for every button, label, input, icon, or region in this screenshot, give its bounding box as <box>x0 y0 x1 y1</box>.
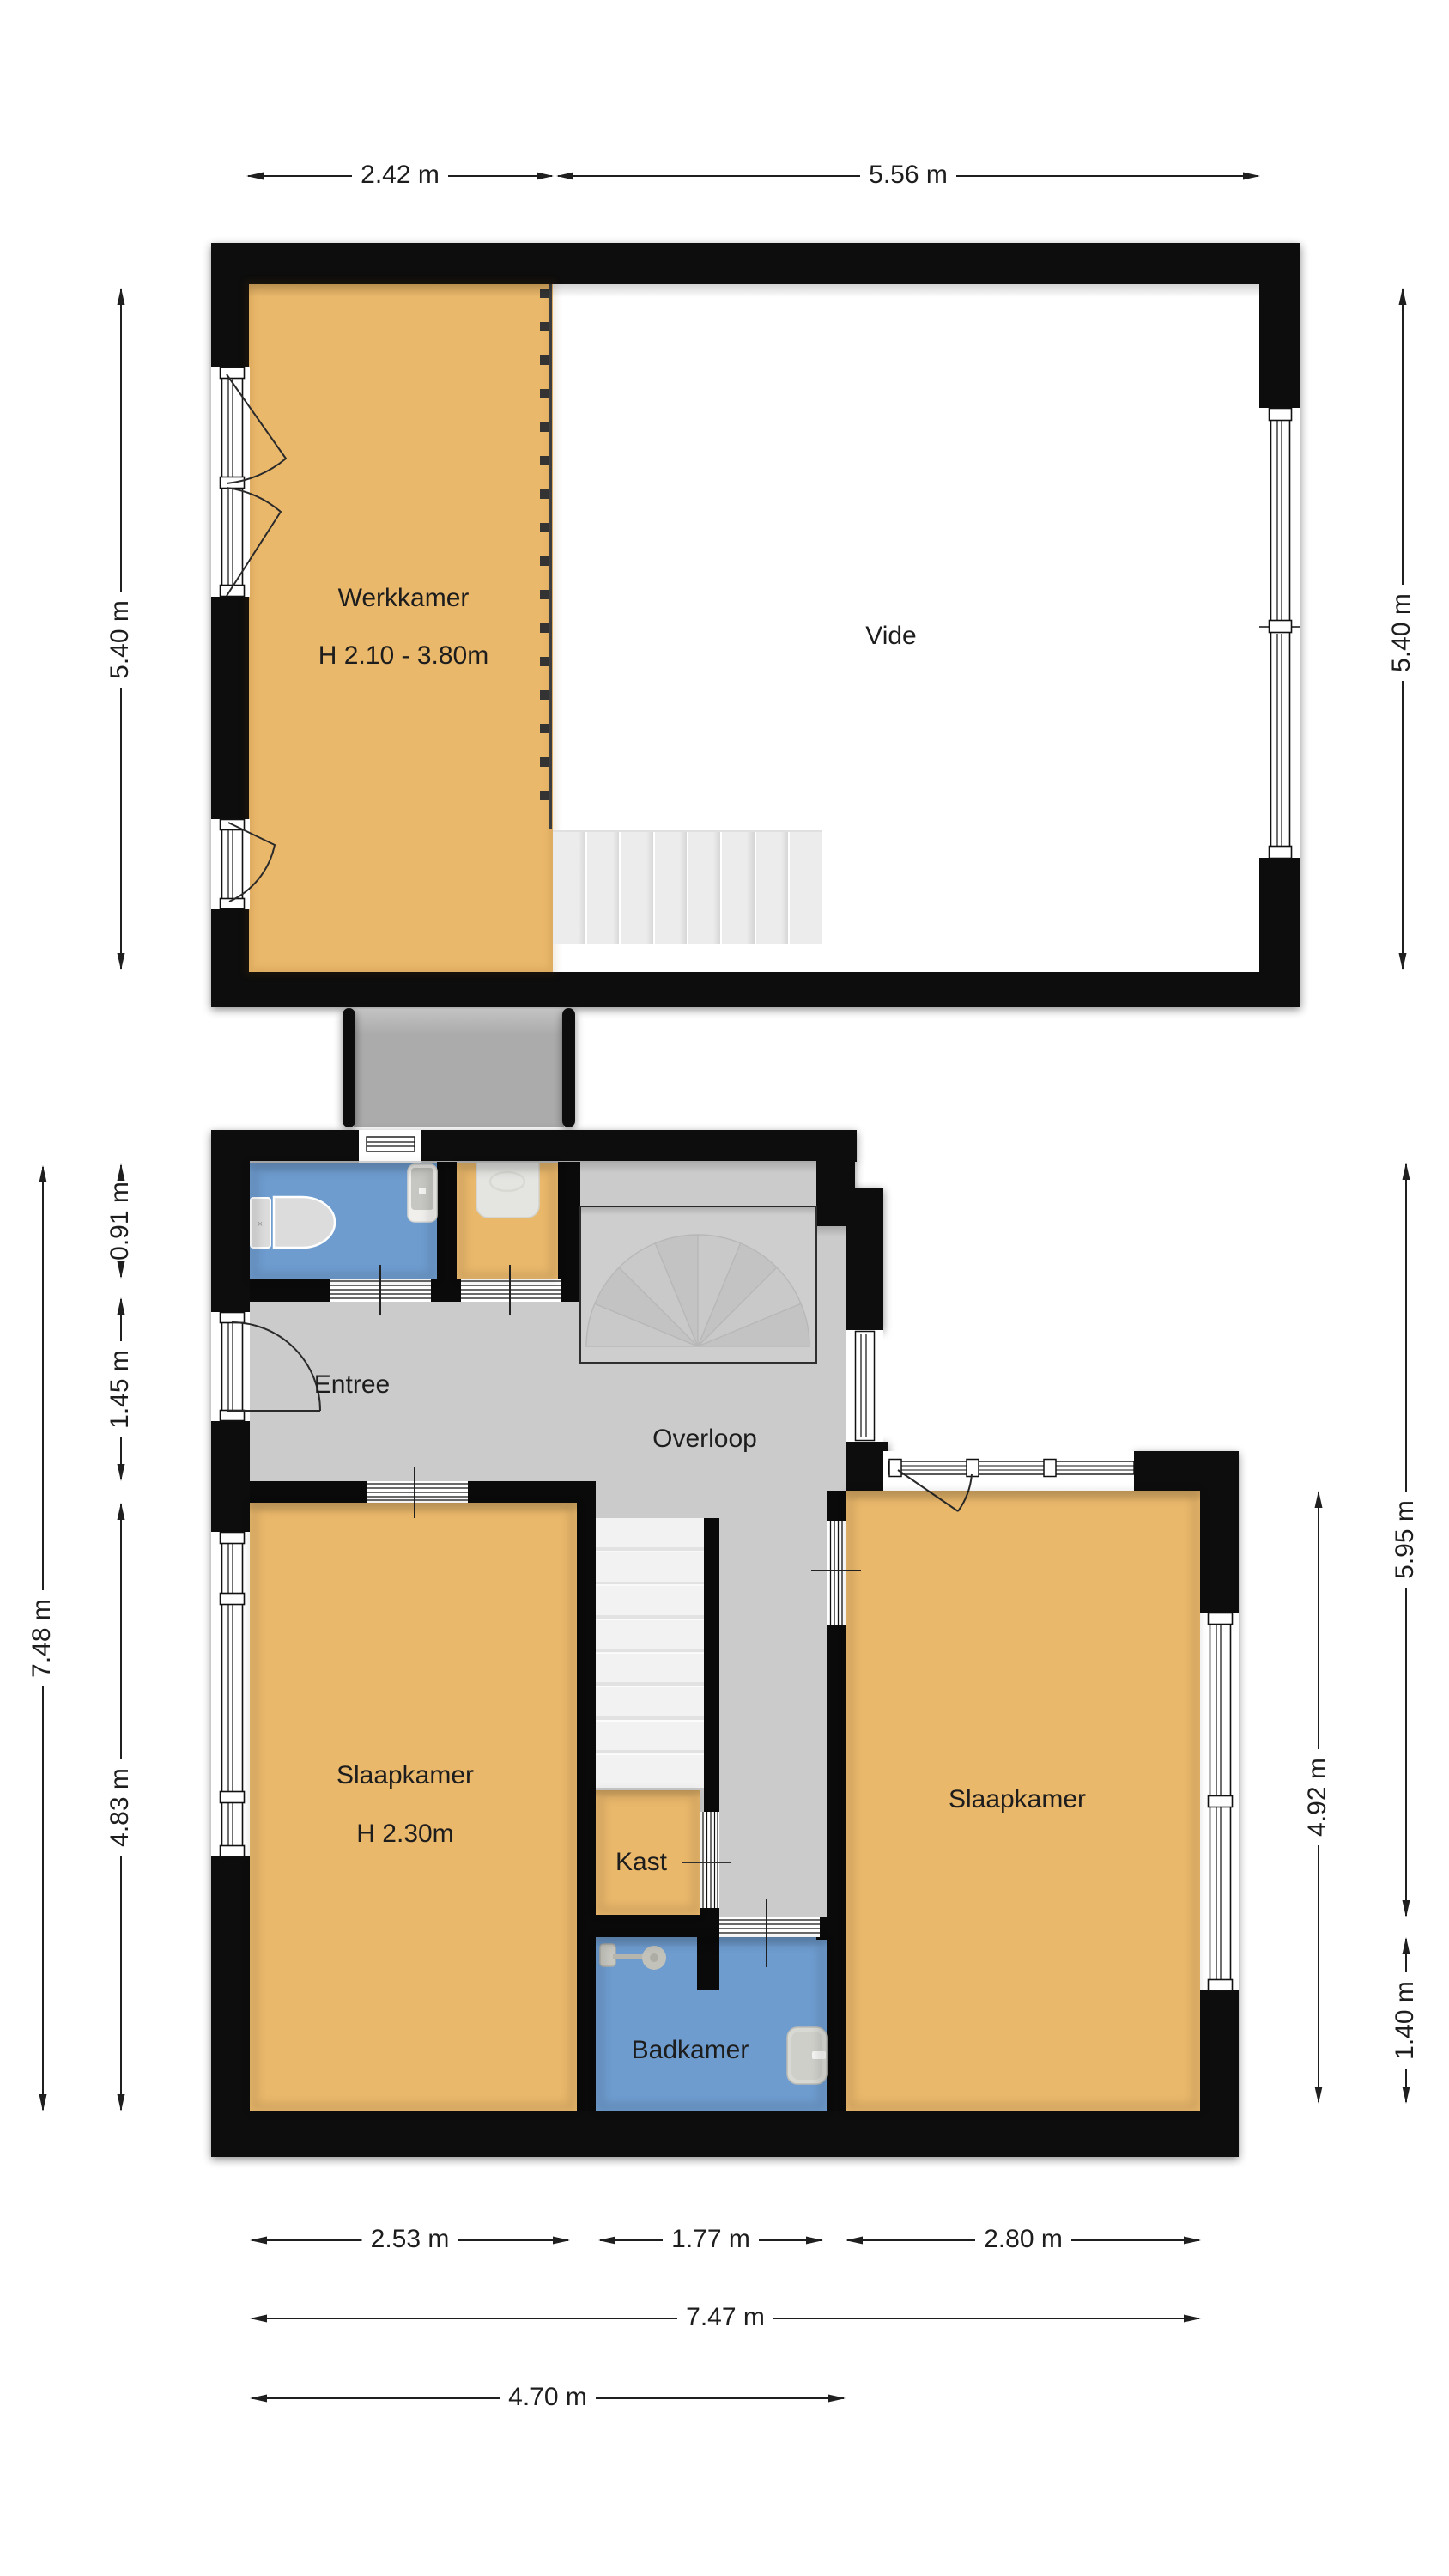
svg-text:4.70 m: 4.70 m <box>508 2383 587 2411</box>
svg-text:1.77 m: 1.77 m <box>671 2225 750 2253</box>
svg-text:7.47 m: 7.47 m <box>686 2303 765 2331</box>
svg-text:Entree: Entree <box>314 1370 390 1399</box>
svg-text:0.91 m: 0.91 m <box>106 1182 134 1261</box>
svg-text:5.40 m: 5.40 m <box>1387 593 1416 672</box>
svg-text:H 2.10 - 3.80m: H 2.10 - 3.80m <box>318 641 488 670</box>
svg-text:2.53 m: 2.53 m <box>371 2225 450 2253</box>
svg-text:4.83 m: 4.83 m <box>106 1768 134 1847</box>
svg-text:2.80 m: 2.80 m <box>984 2225 1063 2253</box>
svg-text:Slaapkamer: Slaapkamer <box>336 1761 474 1789</box>
svg-text:Badkamer: Badkamer <box>632 2036 749 2064</box>
svg-text:Werkkamer: Werkkamer <box>338 584 470 612</box>
svg-text:2.42 m: 2.42 m <box>361 161 440 189</box>
svg-text:1.45 m: 1.45 m <box>106 1350 134 1429</box>
svg-text:7.48 m: 7.48 m <box>27 1599 56 1678</box>
svg-text:Overloop: Overloop <box>652 1425 757 1453</box>
svg-text:H 2.30m: H 2.30m <box>356 1820 453 1848</box>
svg-text:Slaapkamer: Slaapkamer <box>949 1785 1086 1814</box>
svg-text:5.56 m: 5.56 m <box>869 161 948 189</box>
svg-text:5.95 m: 5.95 m <box>1391 1500 1419 1579</box>
svg-text:5.40 m: 5.40 m <box>106 600 134 679</box>
svg-text:Vide: Vide <box>865 622 917 650</box>
svg-text:Kast: Kast <box>615 1848 668 1876</box>
svg-text:4.92 m: 4.92 m <box>1303 1758 1331 1837</box>
svg-text:1.40 m: 1.40 m <box>1391 1981 1419 2060</box>
